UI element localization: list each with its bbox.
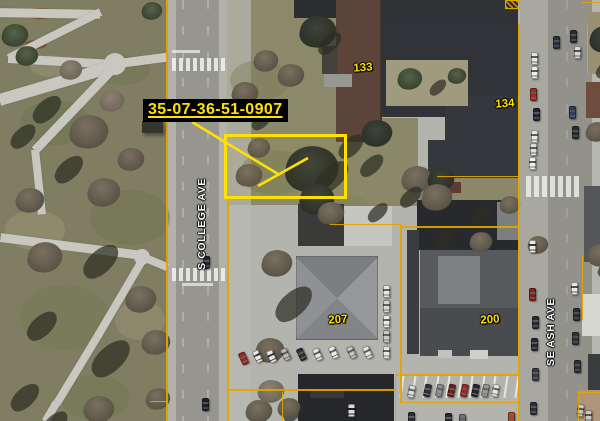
aerial-map-view[interactable]: 35-07-36-51-0907 S COLLEGE AVE SE ASH AV… [0,0,600,421]
leader-line [0,0,600,421]
parcel-id-label: 35-07-36-51-0907 [143,99,288,122]
selected-parcel-outline[interactable] [224,134,347,199]
annotation-layer: 35-07-36-51-0907 S COLLEGE AVE SE ASH AV… [0,0,600,421]
